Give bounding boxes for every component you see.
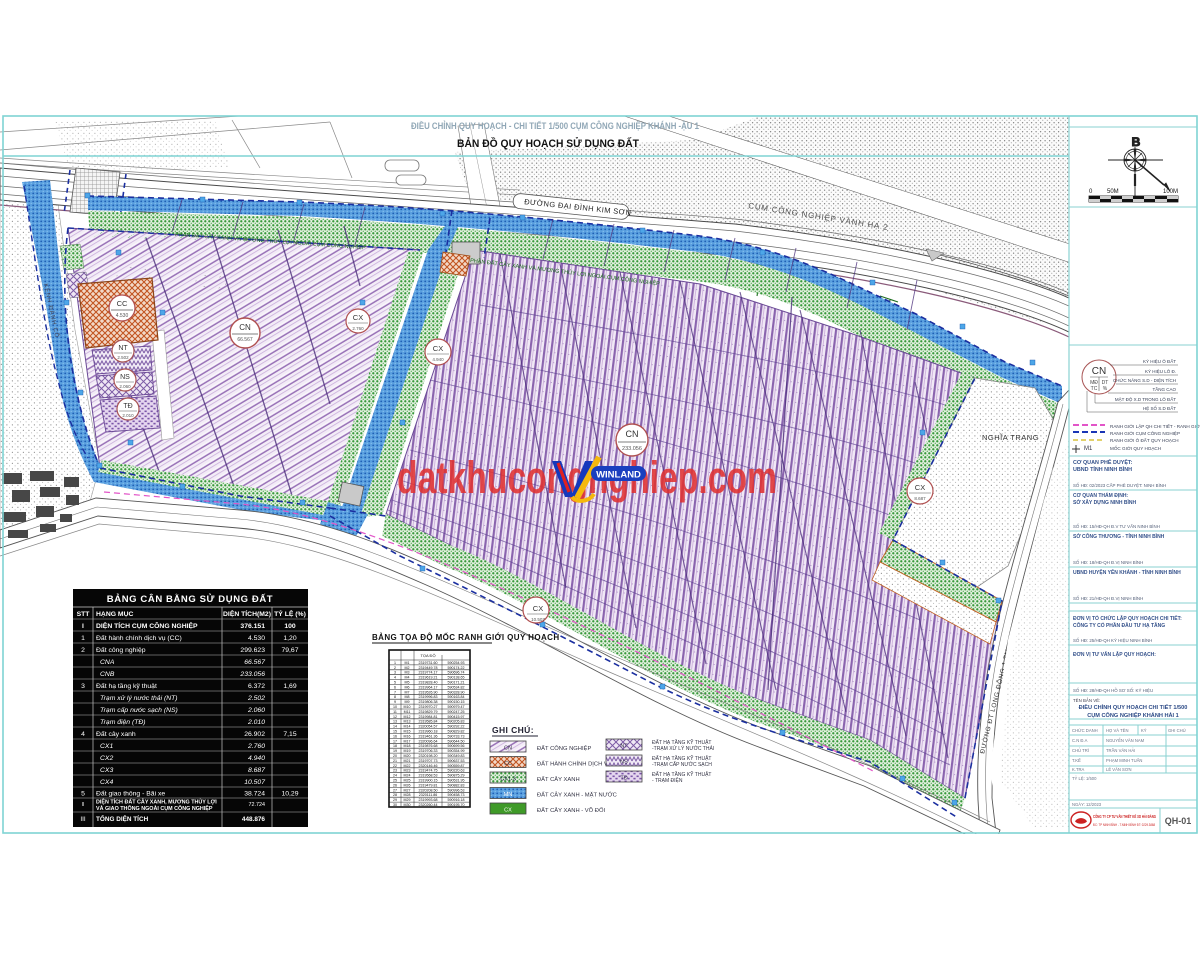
svg-text:66.567: 66.567 — [244, 659, 265, 666]
svg-text:TĐ: TĐ — [123, 403, 132, 410]
svg-text:25: 25 — [393, 779, 397, 783]
svg-text:VÀ GIAO THÔNG NGOÀI CỤM CÔNG N: VÀ GIAO THÔNG NGOÀI CỤM CÔNG NGHIỆP — [96, 804, 213, 812]
svg-text:CX3: CX3 — [100, 767, 113, 774]
svg-text:2319960.18: 2319960.18 — [419, 730, 438, 734]
svg-text:590195.70: 590195.70 — [448, 803, 465, 807]
svg-text:2320111.86: 2320111.86 — [419, 793, 437, 797]
svg-text:2.502: 2.502 — [247, 695, 265, 702]
svg-text:2.010: 2.010 — [247, 719, 265, 726]
svg-text:NS: NS — [620, 760, 628, 766]
svg-text:590138.65: 590138.65 — [448, 676, 465, 680]
svg-text:PHẠM MINH TUẤN: PHẠM MINH TUẤN — [1106, 758, 1142, 763]
svg-text:CX: CX — [433, 344, 443, 353]
svg-text:M19: M19 — [404, 749, 411, 753]
svg-text:K.TRA: K.TRA — [1072, 767, 1085, 772]
svg-text:ĐẤT HẠ TẦNG KỸ THUẬT: ĐẤT HẠ TẦNG KỸ THUẬT — [652, 755, 711, 762]
svg-text:2319806.38: 2319806.38 — [419, 700, 438, 704]
svg-text:590637.53: 590637.53 — [448, 759, 465, 763]
svg-text:590829.82: 590829.82 — [448, 730, 465, 734]
svg-text:8.687: 8.687 — [248, 767, 265, 774]
svg-text:2319993.68: 2319993.68 — [419, 798, 438, 802]
svg-text:RANH GIỚI LẬP QH CHI TIẾT - RA: RANH GIỚI LẬP QH CHI TIẾT - RANH GIỚI GI… — [1110, 423, 1200, 429]
svg-text:SỐ HĐ: 21/HĐ-QH Đ.VỊ: SỐ HĐ: 21/HĐ-QH Đ.VỊ NINH BÌNH — [1073, 596, 1143, 601]
svg-text:3: 3 — [81, 683, 85, 690]
svg-text:2.760: 2.760 — [247, 743, 265, 750]
svg-text:2319461.36: 2319461.36 — [419, 734, 438, 738]
svg-text:ĐẤT CÂY XANH - VÕ ĐỐI: ĐẤT CÂY XANH - VÕ ĐỐI — [537, 807, 605, 814]
svg-text:M1: M1 — [405, 661, 410, 665]
svg-text:4.940: 4.940 — [432, 357, 444, 362]
svg-text:CC: CC — [117, 299, 128, 308]
svg-text:M10: M10 — [404, 705, 411, 709]
svg-text:ĐẤT HẠ TẦNG KỸ THUẬT: ĐẤT HẠ TẦNG KỸ THUẬT — [652, 739, 711, 746]
svg-text:2319970.27: 2319970.27 — [419, 705, 438, 709]
svg-text:2: 2 — [81, 647, 85, 654]
svg-text:GHI CHÚ:: GHI CHÚ: — [492, 724, 534, 735]
svg-text:2319876.68: 2319876.68 — [419, 744, 438, 748]
svg-text:26.902: 26.902 — [244, 731, 265, 738]
svg-text:100: 100 — [284, 623, 296, 630]
svg-text:448.876: 448.876 — [242, 816, 266, 823]
svg-text:10,29: 10,29 — [281, 791, 298, 798]
svg-text:M7: M7 — [405, 690, 410, 694]
svg-text:SỐ HĐ: 02/2023 CẤP PHÊ DUYỆ: SỐ HĐ: 02/2023 CẤP PHÊ DUYỆT: NINH BÌNH — [1073, 483, 1166, 488]
svg-text:M26: M26 — [404, 783, 411, 787]
svg-text:21: 21 — [393, 759, 397, 763]
svg-text:SỞ CÔNG THƯƠNG - TỈNH NINH BÌN: SỞ CÔNG THƯƠNG - TỈNH NINH BÌNH — [1073, 532, 1165, 540]
svg-text:NT: NT — [620, 744, 628, 750]
svg-text:50M: 50M — [1107, 189, 1119, 195]
svg-text:2320096.64: 2320096.64 — [419, 739, 438, 743]
svg-text:590354.99: 590354.99 — [448, 749, 465, 753]
svg-text:Đất hành chính dịch vụ (CC): Đất hành chính dịch vụ (CC) — [96, 633, 182, 642]
svg-text:18: 18 — [393, 744, 397, 748]
svg-text:2319449.78: 2319449.78 — [419, 666, 438, 670]
svg-text:WINLAND: WINLAND — [596, 470, 641, 481]
svg-text:590150.15: 590150.15 — [448, 700, 465, 704]
svg-text:6.372: 6.372 — [248, 683, 265, 690]
svg-text:M29: M29 — [404, 798, 411, 802]
svg-text:NT: NT — [118, 345, 128, 352]
svg-text:72.724: 72.724 — [249, 802, 266, 808]
svg-text:30: 30 — [393, 803, 397, 807]
svg-text:TÊN BẢN VẼ:: TÊN BẢN VẼ: — [1073, 698, 1100, 703]
svg-text:RANH GIỚI Ô ĐẤT QUY HOẠCH: RANH GIỚI Ô ĐẤT QUY HOẠCH — [1110, 437, 1179, 443]
svg-text:CX: CX — [504, 808, 512, 814]
svg-text:TỌA ĐỘ: TỌA ĐỘ — [420, 653, 435, 658]
svg-text:2320198.20: 2320198.20 — [419, 754, 438, 758]
svg-text:CX: CX — [353, 313, 363, 322]
svg-text:MẬT ĐỘ X.D TRONG LÔ ĐẤT: MẬT ĐỘ X.D TRONG LÔ ĐẤT — [1115, 396, 1176, 402]
svg-text:2319568.53: 2319568.53 — [419, 774, 438, 778]
svg-text:-TRẠM XỬ LÝ NƯỚC THẢI: -TRẠM XỬ LÝ NƯỚC THẢI — [652, 745, 714, 752]
svg-text:CHỨC NĂNG S.D - DIỆN TÍCH: CHỨC NĂNG S.D - DIỆN TÍCH — [1113, 376, 1176, 383]
svg-text:10.507: 10.507 — [531, 617, 545, 622]
svg-text:6: 6 — [394, 685, 396, 689]
svg-text:590171.21: 590171.21 — [448, 681, 465, 685]
svg-text:2319828.40: 2319828.40 — [419, 681, 438, 685]
svg-text:M3: M3 — [405, 671, 410, 675]
svg-text:Đất công nghiệp: Đất công nghiệp — [96, 645, 146, 654]
svg-text:M2: M2 — [405, 666, 410, 670]
svg-text:1,20: 1,20 — [283, 635, 296, 642]
svg-text:2319474.75: 2319474.75 — [419, 769, 438, 773]
svg-text:38.724: 38.724 — [244, 791, 265, 798]
svg-text:- TRẠM ĐIỆN: - TRẠM ĐIỆN — [652, 776, 683, 784]
svg-text:UBND TỈNH NINH BÌNH: UBND TỈNH NINH BÌNH — [1073, 465, 1132, 473]
svg-text:M13: M13 — [404, 720, 411, 724]
svg-text:CƠ QUAN THẨM ĐỊNH:: CƠ QUAN THẨM ĐỊNH: — [1073, 492, 1128, 499]
svg-text:590733.73: 590733.73 — [448, 734, 465, 738]
svg-text:5: 5 — [81, 791, 85, 798]
svg-text:590559.87: 590559.87 — [448, 764, 465, 768]
svg-text:CÔNG TY CP TƯ VẤN THIẾT KẾ XD: CÔNG TY CP TƯ VẤN THIẾT KẾ XD HẢI ĐĂNG — [1093, 812, 1156, 819]
svg-text:M20: M20 — [404, 754, 411, 758]
svg-text:DIỆN TÍCH ĐẤT CÂY XANH, MƯƠNG: DIỆN TÍCH ĐẤT CÂY XANH, MƯƠNG THỦY LỢI — [96, 798, 217, 806]
svg-text:M27: M27 — [404, 788, 411, 792]
svg-text:2319619.21: 2319619.21 — [419, 676, 438, 680]
svg-text:2.060: 2.060 — [119, 384, 131, 389]
svg-text:3: 3 — [394, 671, 396, 675]
svg-text:Trạm xử lý nước thải (NT): Trạm xử lý nước thải (NT) — [100, 694, 178, 702]
svg-text:TỶ LỆ (%): TỶ LỆ (%) — [274, 609, 306, 618]
svg-text:CX2: CX2 — [100, 755, 113, 762]
svg-text:M28: M28 — [404, 793, 411, 797]
svg-text:4: 4 — [394, 676, 396, 680]
svg-text:5: 5 — [394, 681, 396, 685]
svg-text:SỞ XÂY DỰNG NINH BÌNH: SỞ XÂY DỰNG NINH BÌNH — [1073, 498, 1136, 506]
svg-text:2319996.83: 2319996.83 — [419, 695, 438, 699]
svg-text:17: 17 — [393, 739, 397, 743]
svg-text:ĐẤT CÂY XANH: ĐẤT CÂY XANH — [537, 776, 580, 783]
svg-text:CNA: CNA — [100, 659, 115, 666]
svg-text:M23: M23 — [404, 769, 411, 773]
svg-text:ĐẤT CÔNG NGHIỆP: ĐẤT CÔNG NGHIỆP — [537, 744, 591, 752]
svg-text:590996.53: 590996.53 — [448, 788, 465, 792]
svg-text:23: 23 — [393, 769, 397, 773]
svg-text:STT: STT — [77, 611, 91, 618]
svg-text:KÝ HIỆU Ô ĐẤT: KÝ HIỆU Ô ĐẤT — [1143, 357, 1176, 364]
svg-text:66.567: 66.567 — [237, 337, 253, 343]
svg-text:CƠ QUAN PHÊ DUYỆT:: CƠ QUAN PHÊ DUYỆT: — [1073, 458, 1133, 466]
svg-text:2319585.84: 2319585.84 — [419, 720, 438, 724]
svg-text:GHI CHÚ: GHI CHÚ — [1168, 728, 1186, 733]
svg-text:HỆ SỐ S.D ĐẤT: HỆ SỐ S.D ĐẤT — [1143, 404, 1176, 411]
svg-text:590292.22: 590292.22 — [448, 725, 465, 729]
svg-text:BẢNG TỌA ĐỘ MỐC RANH GIỚI QUY: BẢNG TỌA ĐỘ MỐC RANH GIỚI QUY HOẠCH — [372, 632, 560, 642]
svg-text:I: I — [82, 623, 84, 630]
svg-text:14: 14 — [393, 725, 397, 729]
svg-text:CX1-3: CX1-3 — [500, 777, 516, 783]
svg-text:2.502: 2.502 — [117, 355, 129, 360]
svg-text:590247.25: 590247.25 — [448, 710, 465, 714]
svg-text:MỐC GIỚI QUY HOẠCH: MỐC GIỚI QUY HOẠCH — [1110, 445, 1161, 451]
svg-text:2320260.44: 2320260.44 — [419, 803, 438, 807]
svg-text:2.760: 2.760 — [352, 326, 364, 331]
svg-text:CX: CX — [533, 604, 543, 613]
svg-text:590644.50: 590644.50 — [448, 739, 465, 743]
svg-text:M14: M14 — [404, 725, 411, 729]
svg-text:1: 1 — [394, 661, 396, 665]
svg-text:CX4: CX4 — [100, 779, 113, 786]
svg-text:2.060: 2.060 — [247, 707, 265, 714]
svg-text:ĐC: TP NINH BÌNH - T.NINH BÌNH: ĐC: TP NINH BÌNH - T.NINH BÌNH ĐT: 0229.… — [1093, 822, 1156, 827]
svg-text:26: 26 — [393, 783, 397, 787]
svg-text:2319984.81: 2319984.81 — [419, 715, 438, 719]
svg-text:233.056: 233.056 — [239, 671, 265, 678]
svg-text:B: B — [1132, 135, 1141, 149]
svg-text:SỐ HĐ: 28/HĐ-QH HỒ SƠ SỐ:: SỐ HĐ: 28/HĐ-QH HỒ SƠ SỐ: KÝ HIỆU — [1073, 688, 1153, 693]
svg-text:10.507: 10.507 — [244, 779, 265, 786]
svg-text:DIỆN TÍCH(M2): DIỆN TÍCH(M2) — [223, 609, 271, 618]
svg-text:2320208.50: 2320208.50 — [419, 788, 438, 792]
svg-text:4.940: 4.940 — [248, 755, 265, 762]
svg-text:BẢNG CÂN BẰNG SỬ DỤNG ĐẤT: BẢNG CÂN BẰNG SỬ DỤNG ĐẤT — [107, 593, 273, 605]
svg-text:4: 4 — [81, 731, 85, 738]
svg-text:CX1: CX1 — [100, 743, 113, 750]
svg-text:2319707.73: 2319707.73 — [419, 759, 438, 763]
svg-text:KÝ HIỆU LÔ Đ.: KÝ HIỆU LÔ Đ. — [1145, 367, 1176, 374]
svg-text:M18: M18 — [404, 744, 411, 748]
svg-text:M30: M30 — [404, 803, 411, 807]
svg-text:DIỆN TÍCH CỤM CÔNG NGHIỆP: DIỆN TÍCH CỤM CÔNG NGHIỆP — [96, 621, 198, 630]
svg-text:ĐẤT HÀNH CHÍNH DỊCH VỤ: ĐẤT HÀNH CHÍNH DỊCH VỤ — [537, 761, 612, 768]
svg-text:590254.93: 590254.93 — [448, 661, 465, 665]
svg-text:CN: CN — [1092, 366, 1106, 377]
svg-text:%: % — [1103, 386, 1108, 392]
svg-text:TẦNG CAO: TẦNG CAO — [1152, 386, 1176, 392]
svg-text:590349.83: 590349.83 — [448, 754, 465, 758]
svg-text:TĐ: TĐ — [620, 776, 627, 782]
svg-text:1,69: 1,69 — [283, 683, 296, 690]
svg-text:12: 12 — [393, 715, 397, 719]
svg-text:2319731.60: 2319731.60 — [419, 661, 438, 665]
svg-text:BẢN ĐỒ QUY HOẠCH SỬ DỤNG ĐẤT: BẢN ĐỒ QUY HOẠCH SỬ DỤNG ĐẤT — [457, 137, 639, 150]
svg-text:2319774.17: 2319774.17 — [419, 671, 438, 675]
svg-text:590220.63: 590220.63 — [448, 769, 465, 773]
svg-text:100M: 100M — [1163, 189, 1178, 195]
svg-text:16: 16 — [393, 734, 397, 738]
svg-text:2: 2 — [394, 666, 396, 670]
svg-text:Trạm cấp nước sạch (NS): Trạm cấp nước sạch (NS) — [100, 706, 178, 714]
svg-text:2319706.33: 2319706.33 — [419, 749, 438, 753]
svg-text:22: 22 — [393, 764, 397, 768]
svg-text:590328.90: 590328.90 — [448, 690, 465, 694]
svg-text:Đất giao thông - Bãi xe: Đất giao thông - Bãi xe — [96, 789, 165, 798]
svg-text:79,67: 79,67 — [281, 647, 298, 654]
svg-text:590534.82: 590534.82 — [448, 685, 465, 689]
svg-text:8.687: 8.687 — [914, 496, 926, 501]
svg-text:QH-01: QH-01 — [1165, 816, 1192, 826]
svg-text:CN: CN — [239, 323, 251, 332]
svg-text:590696.74: 590696.74 — [448, 671, 465, 675]
svg-text:4.530: 4.530 — [248, 635, 265, 642]
svg-text:9: 9 — [394, 700, 396, 704]
svg-text:M16: M16 — [404, 734, 411, 738]
svg-text:8: 8 — [394, 695, 396, 699]
svg-text:4.530: 4.530 — [116, 313, 129, 319]
svg-text:ĐẤT CÂY XANH - MẶT NƯỚC: ĐẤT CÂY XANH - MẶT NƯỚC — [537, 792, 617, 799]
svg-text:LÊ VĂN SƠN: LÊ VĂN SƠN — [1106, 767, 1131, 772]
svg-text:M8: M8 — [405, 695, 410, 699]
svg-text:II: II — [82, 802, 85, 808]
svg-text:2319526.90: 2319526.90 — [419, 690, 438, 694]
svg-text:M17: M17 — [404, 739, 411, 743]
svg-text:TỔNG DIỆN TÍCH: TỔNG DIỆN TÍCH — [96, 814, 149, 823]
svg-text:2319479.81: 2319479.81 — [419, 783, 438, 787]
svg-text:NGÀY: 12/2023: NGÀY: 12/2023 — [1072, 802, 1102, 807]
svg-text:ĐẤT HẠ TẦNG KỸ THUẬT: ĐẤT HẠ TẦNG KỸ THUẬT — [652, 771, 711, 778]
svg-text:UBND HUYỆN YÊN KHÁNH - TỈNH NI: UBND HUYỆN YÊN KHÁNH - TỈNH NINH BÌNH — [1073, 568, 1181, 576]
svg-text:M22: M22 — [404, 764, 411, 768]
svg-text:590415.97: 590415.97 — [448, 715, 465, 719]
svg-text:11: 11 — [393, 710, 397, 714]
svg-text:CNB: CNB — [100, 671, 115, 678]
svg-text:KÝ: KÝ — [1141, 728, 1147, 733]
svg-text:15: 15 — [393, 730, 397, 734]
svg-text:590875.29: 590875.29 — [448, 774, 465, 778]
svg-text:13: 13 — [393, 720, 397, 724]
svg-text:590979.47: 590979.47 — [448, 705, 465, 709]
svg-text:M15: M15 — [404, 730, 411, 734]
svg-text:Đất hạ tầng kỹ thuật: Đất hạ tầng kỹ thuật — [96, 681, 157, 690]
svg-text:2319829.79: 2319829.79 — [419, 710, 438, 714]
svg-text:RANH GIỚI CỤM CÔNG NGHIỆP: RANH GIỚI CỤM CÔNG NGHIỆP — [1110, 429, 1180, 436]
svg-text:590205.83: 590205.83 — [448, 720, 465, 724]
svg-text:M21: M21 — [404, 759, 411, 763]
svg-text:ĐƠN VỊ TỔ CHỨC LẬP QUY HOẠCH C: ĐƠN VỊ TỔ CHỨC LẬP QUY HOẠCH CHI TIẾT: — [1073, 615, 1182, 622]
svg-text:ĐƠN VỊ TƯ VẤN LẬP QUY HOẠCH:: ĐƠN VỊ TƯ VẤN LẬP QUY HOẠCH: — [1073, 651, 1156, 658]
svg-text:2320146.46: 2320146.46 — [419, 764, 438, 768]
svg-text:20: 20 — [393, 754, 397, 758]
svg-text:M5: M5 — [405, 681, 410, 685]
svg-text:CN: CN — [504, 746, 512, 752]
svg-text:Trạm điện (TĐ): Trạm điện (TĐ) — [100, 719, 146, 726]
svg-text:HẠNG MỤC: HẠNG MỤC — [96, 611, 133, 618]
svg-text:376.151: 376.151 — [240, 623, 265, 630]
svg-text:28: 28 — [393, 793, 397, 797]
svg-text:CỤM CÔNG NGHIỆP KHÁNH HẢI 1: CỤM CÔNG NGHIỆP KHÁNH HẢI 1 — [1087, 711, 1179, 719]
svg-text:SỐ HĐ: 15/HĐ-QH Đ.V TƯ V: SỐ HĐ: 15/HĐ-QH Đ.V TƯ VẤN NINH BÌNH — [1073, 524, 1160, 529]
svg-text:T.KẾ: T.KẾ — [1072, 758, 1081, 763]
svg-text:M12: M12 — [404, 715, 411, 719]
svg-text:CN: CN — [626, 429, 639, 439]
svg-text:M24: M24 — [404, 774, 411, 778]
svg-text:-TRẠM CẤP NƯỚC SẠCH: -TRẠM CẤP NƯỚC SẠCH — [652, 761, 712, 768]
svg-text:III: III — [80, 816, 86, 823]
svg-text:2320054.57: 2320054.57 — [419, 725, 438, 729]
svg-text:M4: M4 — [405, 676, 410, 680]
svg-text:299.623: 299.623 — [240, 647, 265, 654]
svg-text:M6: M6 — [405, 685, 410, 689]
svg-text:7: 7 — [394, 690, 396, 694]
svg-text:590882.83: 590882.83 — [448, 783, 465, 787]
svg-text:590174.22: 590174.22 — [448, 666, 465, 670]
svg-text:NGHĨA TRANG: NGHĨA TRANG — [982, 433, 1039, 442]
svg-text:M25: M25 — [404, 779, 411, 783]
svg-text:NS: NS — [120, 374, 130, 381]
svg-text:CHỦ TRÌ: CHỦ TRÌ — [1072, 748, 1089, 753]
svg-text:ĐIỀU CHỈNH QUY HOẠCH CHI TIẾT: ĐIỀU CHỈNH QUY HOẠCH CHI TIẾT 1/500 — [1079, 704, 1188, 711]
svg-text:24: 24 — [393, 774, 397, 778]
svg-text:M1: M1 — [1084, 446, 1093, 452]
svg-text:C.N Đ.A: C.N Đ.A — [1072, 738, 1088, 743]
svg-text:2.010: 2.010 — [122, 413, 134, 418]
svg-text:1: 1 — [81, 635, 85, 642]
svg-text:590531.95: 590531.95 — [448, 779, 465, 783]
svg-text:M9: M9 — [405, 700, 410, 704]
svg-text:NGUYỄN VĂN NAM: NGUYỄN VĂN NAM — [1106, 738, 1145, 743]
svg-text:ĐIỀU CHỈNH QUY HOẠCH - CHI TIẾ: ĐIỀU CHỈNH QUY HOẠCH - CHI TIẾT 1/500 CỤ… — [411, 120, 699, 131]
svg-text:Đất cây xanh: Đất cây xanh — [96, 729, 136, 738]
svg-text:MN: MN — [504, 792, 513, 798]
svg-text:SỐ HĐ: 18/HĐ-QH Đ.VỊ: SỐ HĐ: 18/HĐ-QH Đ.VỊ NINH BÌNH — [1073, 560, 1143, 565]
svg-text:TC: TC — [1091, 386, 1098, 392]
svg-text:29: 29 — [393, 798, 397, 802]
svg-text:CX: CX — [915, 483, 925, 492]
svg-text:CHỨC DANH: CHỨC DANH — [1072, 728, 1098, 733]
svg-text:7,15: 7,15 — [283, 731, 296, 738]
svg-text:CC: CC — [504, 761, 512, 767]
svg-text:TỶ LỆ: 1/500: TỶ LỆ: 1/500 — [1072, 776, 1097, 781]
svg-text:27: 27 — [393, 788, 397, 792]
svg-text:590163.84: 590163.84 — [448, 695, 465, 699]
svg-text:590699.56: 590699.56 — [448, 744, 465, 748]
svg-text:2319900.15: 2319900.15 — [419, 779, 438, 783]
svg-text:590916.18: 590916.18 — [448, 798, 465, 802]
svg-text:590458.73: 590458.73 — [448, 793, 465, 797]
svg-text:HỌ VÀ TÊN: HỌ VÀ TÊN — [1106, 728, 1129, 733]
svg-text:TRẦN VĂN HẢI: TRẦN VĂN HẢI — [1106, 748, 1135, 753]
svg-text:10: 10 — [393, 705, 397, 709]
svg-text:2319964.17: 2319964.17 — [419, 685, 438, 689]
svg-text:SỐ HĐ: 25/HĐ-QH KÝ HIỆU: SỐ HĐ: 25/HĐ-QH KÝ HIỆU NINH BÌNH — [1073, 638, 1152, 643]
svg-text:M11: M11 — [404, 710, 411, 714]
svg-text:19: 19 — [393, 749, 397, 753]
svg-text:CÔNG TY CỔ PHẦN ĐẦU TƯ HẠ TẦNG: CÔNG TY CỔ PHẦN ĐẦU TƯ HẠ TẦNG — [1073, 621, 1165, 629]
